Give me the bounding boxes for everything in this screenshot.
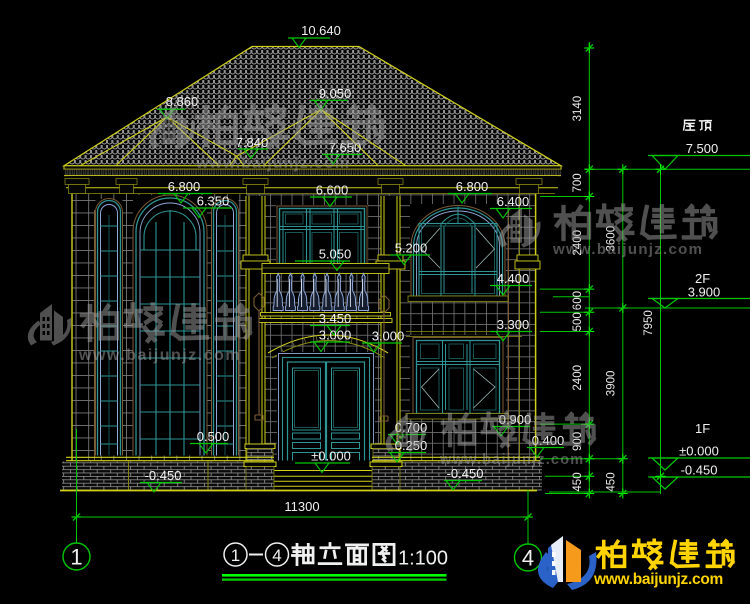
svg-text:450: 450: [572, 472, 584, 491]
svg-text:6.400: 6.400: [497, 194, 530, 209]
svg-text:3900: 3900: [606, 371, 618, 397]
svg-text:www.baijunjz.com: www.baijunjz.com: [593, 571, 723, 588]
svg-text:1: 1: [70, 545, 82, 570]
svg-text:6.800: 6.800: [456, 179, 489, 194]
svg-text:7.840: 7.840: [236, 135, 269, 150]
svg-text:www.baijunjz.com: www.baijunjz.com: [439, 452, 584, 468]
svg-text:-0.450: -0.450: [145, 468, 182, 483]
svg-text:7.500: 7.500: [686, 141, 719, 156]
svg-text:www.baijunjz.com: www.baijunjz.com: [195, 155, 350, 172]
svg-text:3140: 3140: [572, 96, 584, 122]
svg-text:1F: 1F: [695, 421, 710, 436]
svg-text:6.800: 6.800: [168, 179, 201, 194]
svg-text:1: 1: [231, 546, 240, 565]
svg-text:4.400: 4.400: [497, 271, 530, 286]
svg-text:3.300: 3.300: [497, 317, 530, 332]
svg-text:-0.450: -0.450: [447, 466, 484, 481]
svg-text:600: 600: [572, 291, 584, 310]
svg-text:10.640: 10.640: [301, 23, 341, 38]
svg-text:3.450: 3.450: [319, 311, 352, 326]
svg-text:2400: 2400: [572, 365, 584, 391]
svg-text:-0.450: -0.450: [681, 463, 718, 478]
svg-text:±0.000: ±0.000: [311, 449, 351, 464]
svg-text:11300: 11300: [284, 499, 319, 514]
svg-text:5.200: 5.200: [395, 241, 428, 256]
svg-text:www.baijunjz.com: www.baijunjz.com: [552, 241, 703, 258]
svg-text:6.600: 6.600: [316, 183, 349, 198]
svg-text:4: 4: [272, 546, 281, 565]
svg-text:700: 700: [572, 173, 584, 192]
svg-text:±0.000: ±0.000: [679, 444, 719, 459]
svg-text:450: 450: [606, 472, 618, 491]
svg-text:3.000: 3.000: [372, 329, 405, 344]
svg-text:1:100: 1:100: [398, 548, 448, 570]
svg-text:7950: 7950: [643, 310, 655, 336]
svg-text:8.860: 8.860: [166, 94, 199, 109]
svg-text:6.350: 6.350: [197, 194, 230, 209]
svg-text:4: 4: [522, 546, 534, 571]
svg-text:500: 500: [572, 312, 584, 331]
svg-text:5.050: 5.050: [319, 247, 352, 262]
svg-text:0.500: 0.500: [197, 429, 230, 444]
svg-text:3.000: 3.000: [319, 328, 352, 343]
svg-text:3.900: 3.900: [688, 285, 721, 300]
svg-text:www.baijunjz.com: www.baijunjz.com: [78, 347, 241, 364]
svg-text:9.050: 9.050: [319, 86, 352, 101]
